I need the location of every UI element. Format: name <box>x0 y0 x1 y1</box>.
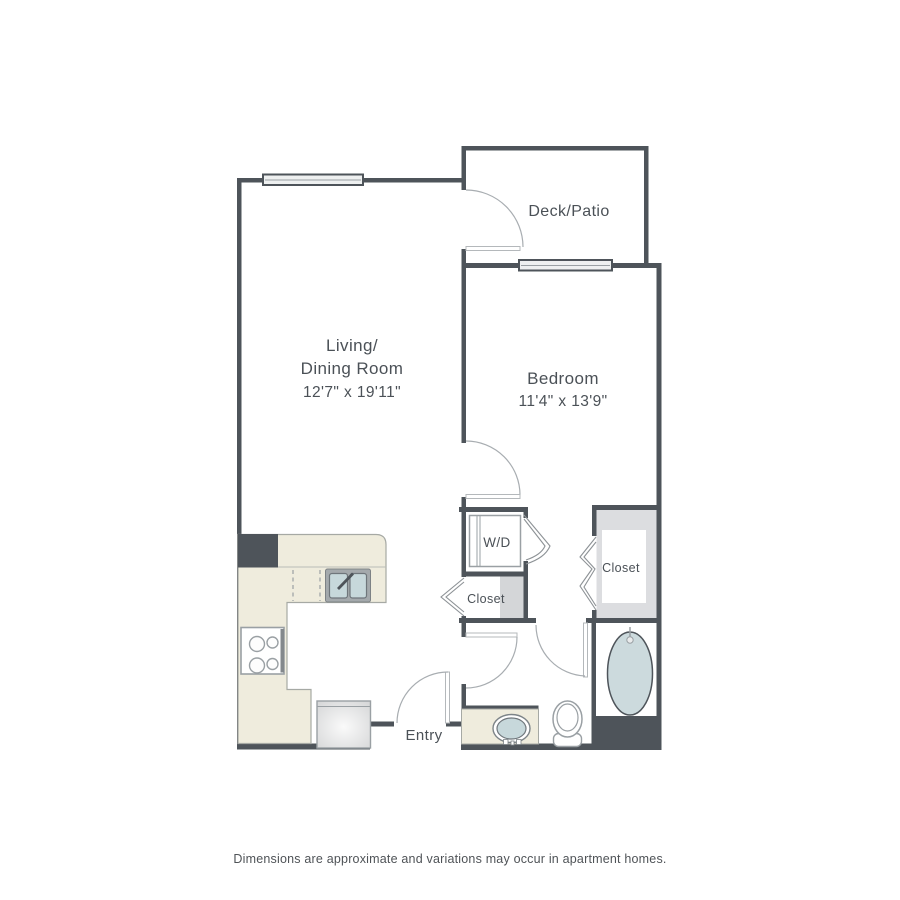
toilet <box>553 701 582 747</box>
windows <box>263 175 612 271</box>
tub-room-bottom-block <box>592 716 662 746</box>
deck-door <box>466 190 523 251</box>
wd-closet-door <box>524 515 550 564</box>
hall-closet-right-wall <box>524 577 529 624</box>
bedroom-closet-label: Closet <box>602 561 640 575</box>
deck-right-wall <box>644 146 649 266</box>
living-room-label-line1: Living/ <box>326 336 378 355</box>
vanity-back-edge <box>462 706 539 710</box>
kitchen <box>238 534 386 748</box>
deck-patio-label: Deck/Patio <box>528 203 609 220</box>
walls <box>237 146 662 750</box>
bathroom-bedroom-door <box>536 623 588 677</box>
corridor-wall-stub <box>528 618 536 623</box>
tub-room-left-wall <box>592 623 597 718</box>
dishwasher <box>317 701 371 748</box>
hall-closet-label: Closet <box>467 592 505 606</box>
bedroom-closet-left-wall-upper <box>592 510 597 536</box>
bathroom-hall-door <box>466 633 517 688</box>
bedroom-label: Bedroom <box>527 369 599 388</box>
bathtub <box>608 627 653 715</box>
deck-left-wall-upper <box>462 146 467 190</box>
living-room-window <box>263 175 363 186</box>
stove <box>241 628 284 675</box>
bedroom-closet-top-wall <box>592 505 662 510</box>
bedroom-closet-bottom-wall <box>586 618 662 623</box>
floorplan-page: Living/ Dining Room 12'7" x 19'11" Bedro… <box>0 0 900 900</box>
drain-icon <box>627 637 633 643</box>
living-room-label-line2: Dining Room <box>301 359 404 378</box>
living-bedroom-divider-wall <box>462 249 467 443</box>
refrigerator <box>238 534 278 568</box>
bedroom-dimensions: 11'4" x 13'9" <box>518 393 607 410</box>
footer-disclaimer: Dimensions are approximate and variation… <box>233 852 666 866</box>
bedroom-window <box>519 260 612 271</box>
bedroom-door <box>466 441 520 499</box>
wd-hall-closet-shared-wall <box>462 572 528 577</box>
hall-closet-bottom-wall <box>459 618 528 623</box>
living-room-dimensions: 12'7" x 19'11" <box>303 384 401 401</box>
bedroom-closet-bifold-door <box>580 537 596 610</box>
entry-door <box>397 672 450 723</box>
deck-top-wall <box>462 146 649 151</box>
wd-closet-top-wall <box>459 507 528 512</box>
hall-closet-bifold-door <box>441 578 464 616</box>
kitchen-sink <box>326 569 371 602</box>
entry-label: Entry <box>405 727 442 744</box>
washer-dryer-label: W/D <box>483 535 510 550</box>
floorplan-canvas: Living/ Dining Room 12'7" x 19'11" Bedro… <box>0 0 900 900</box>
